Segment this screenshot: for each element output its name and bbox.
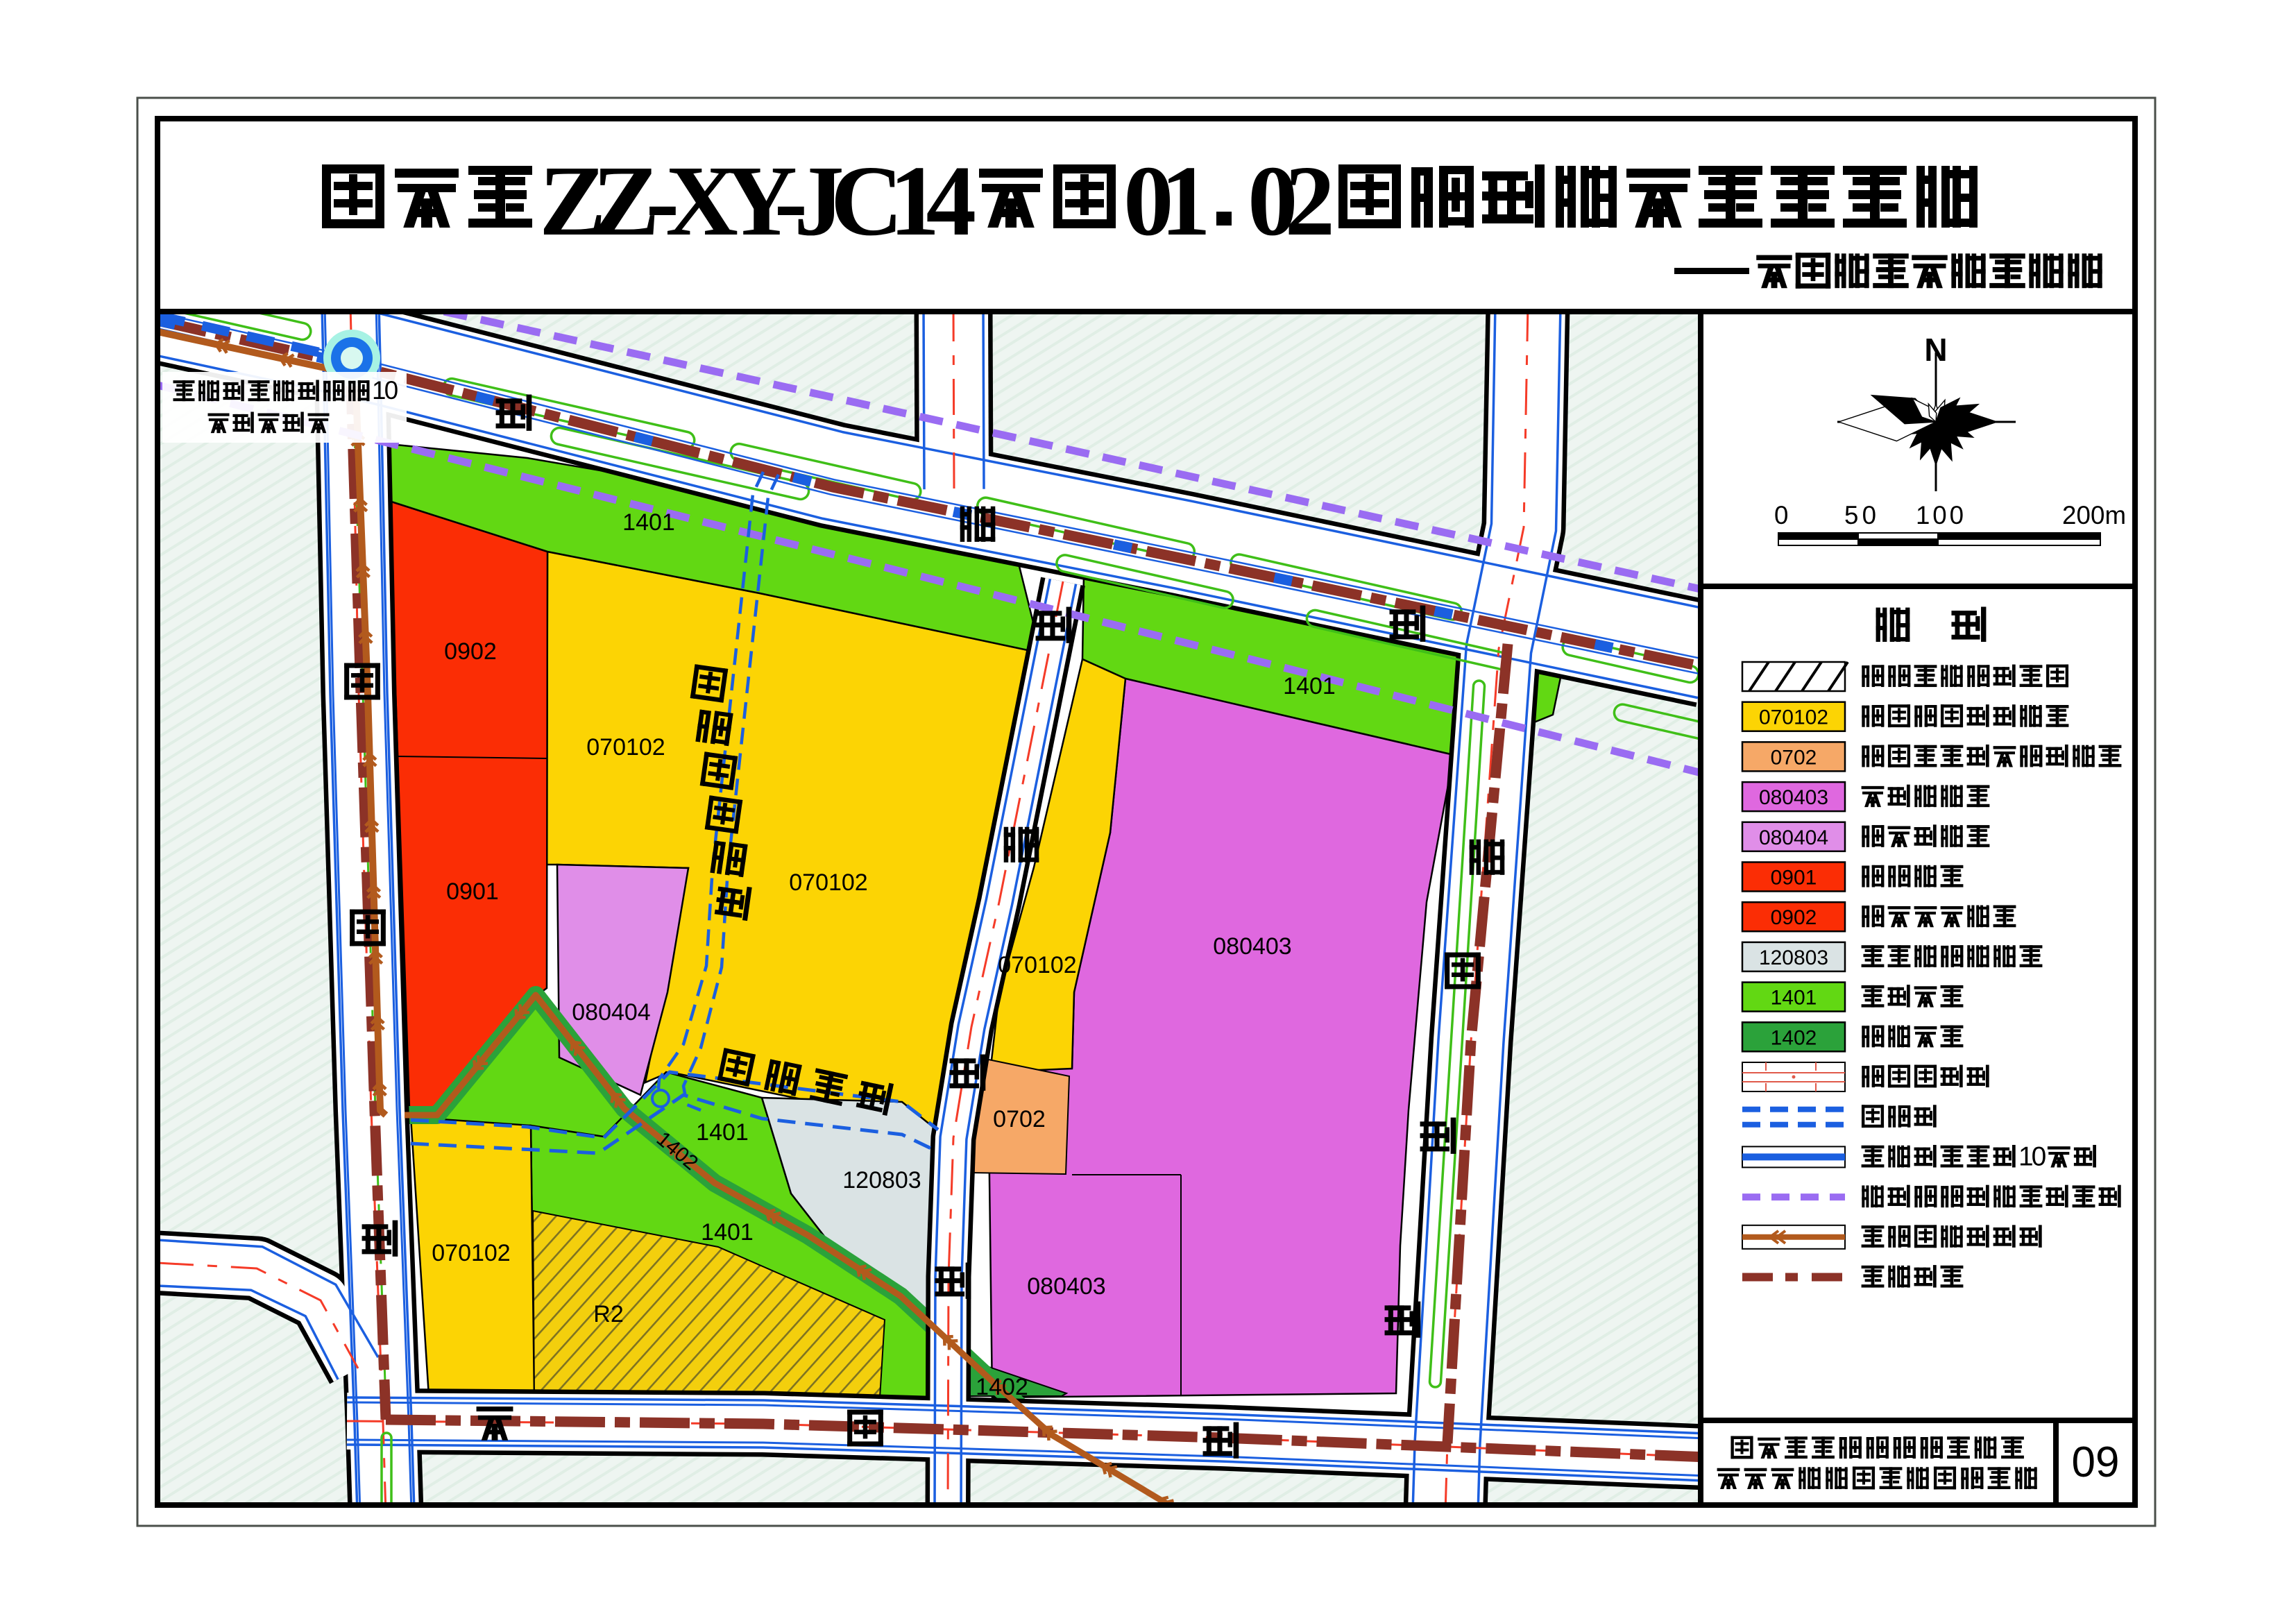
svg-text:080403: 080403 [1759,786,1828,809]
svg-text:01: 01 [1123,146,1211,257]
svg-text:09: 09 [2072,1438,2120,1486]
svg-text:1401: 1401 [622,509,675,536]
svg-text:120803: 120803 [842,1167,921,1193]
svg-text:1402: 1402 [976,1374,1028,1400]
svg-text:070102: 070102 [586,734,665,760]
svg-text:070102: 070102 [789,869,867,896]
svg-text:0: 0 [1774,501,1788,529]
svg-text:10: 10 [372,376,398,405]
svg-text:1401: 1401 [1283,673,1336,699]
svg-text:070102: 070102 [1759,706,1828,729]
svg-text:100: 100 [1916,501,1964,529]
svg-text:0702: 0702 [1771,746,1817,769]
svg-text:080404: 080404 [572,999,650,1026]
svg-text:1401: 1401 [1771,987,1817,1010]
svg-text:02: 02 [1248,146,1335,257]
svg-text:10: 10 [2018,1141,2046,1171]
svg-text:0901: 0901 [446,878,499,905]
svg-text:1401: 1401 [696,1119,749,1146]
svg-text:N: N [1924,332,1947,368]
svg-text:080403: 080403 [1213,933,1291,960]
svg-text:080404: 080404 [1759,826,1828,849]
svg-text:070102: 070102 [432,1240,510,1266]
svg-text:200m: 200m [2062,501,2126,529]
svg-text:0902: 0902 [1771,906,1817,929]
svg-text:0702: 0702 [993,1106,1046,1132]
svg-text:070102: 070102 [998,952,1076,978]
svg-text:R2: R2 [593,1301,623,1327]
svg-text:080403: 080403 [1027,1273,1105,1300]
svg-text:0902: 0902 [444,638,497,665]
svg-text:ZZ-XY-JC14: ZZ-XY-JC14 [539,146,976,257]
svg-text:0901: 0901 [1771,867,1817,890]
svg-text:1401: 1401 [701,1219,754,1246]
svg-text:1402: 1402 [1771,1026,1817,1049]
svg-text:120803: 120803 [1759,946,1828,969]
